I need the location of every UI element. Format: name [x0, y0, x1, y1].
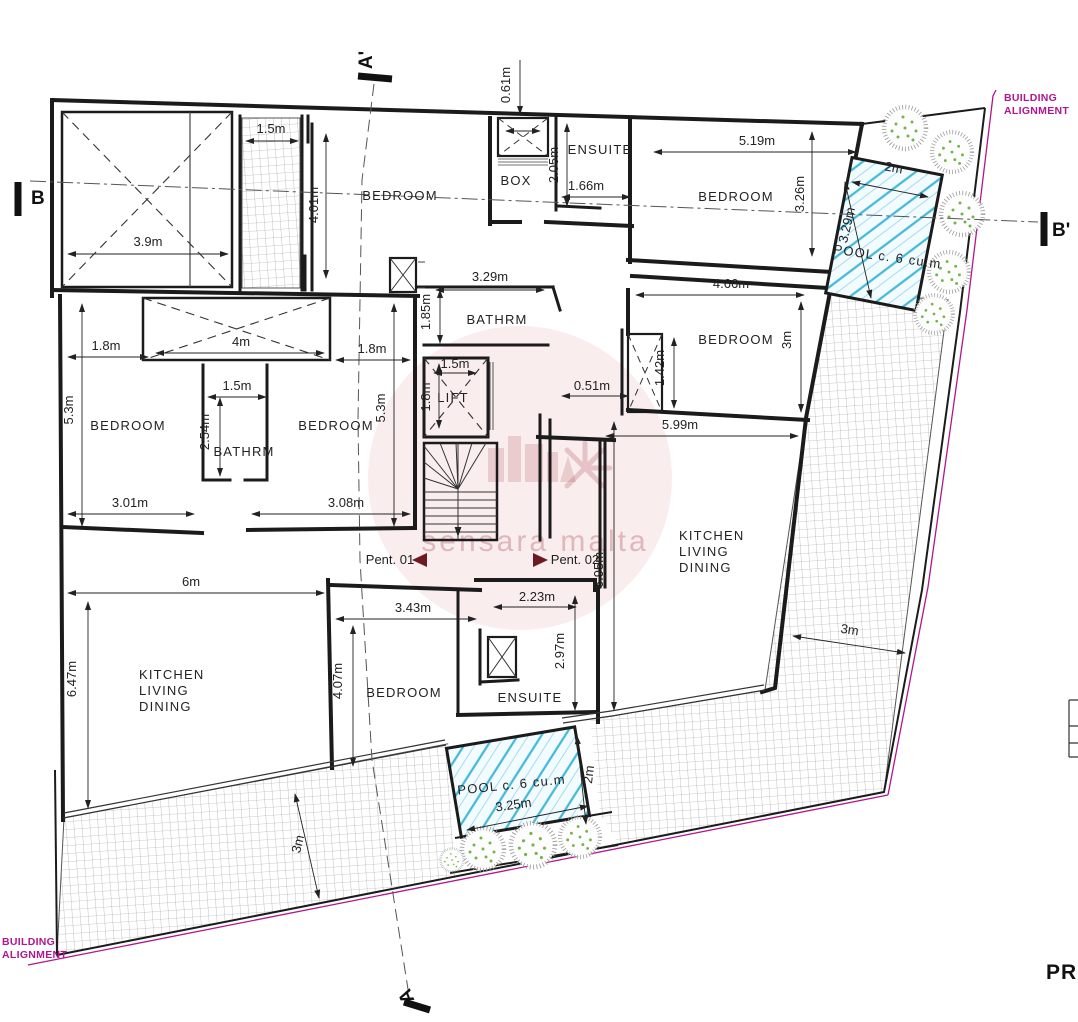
- dim-bottom-ensuite-width: 2.23m: [519, 589, 555, 604]
- room-kitchen-left-3: DINING: [139, 699, 192, 714]
- dim-void4-width: 4m: [232, 334, 250, 349]
- dim-right-bedroom-depth: 3m: [779, 331, 794, 349]
- dim-kitchen-right-width: 5.99m: [662, 417, 698, 432]
- room-left-bedroom: BEDROOM: [90, 418, 166, 433]
- alignment-top-right-2: ALIGNMENT: [1004, 105, 1069, 117]
- dim-center-bath-depth: 1.85m: [418, 294, 433, 330]
- dim-lift-depth: 1.8m: [418, 383, 433, 412]
- dim-kitchen-left-depth: 6.47m: [64, 661, 79, 697]
- dim-kitchen-left-width: 6m: [182, 574, 200, 589]
- dim-left-depth: 5.3m: [61, 396, 76, 425]
- dim-tr-bedroom-depth: 3.26m: [792, 176, 807, 212]
- room-left-bathroom: BATHRM: [213, 444, 274, 459]
- dim-center-bath-width: 3.29m: [472, 269, 508, 284]
- dim-strip-height: 4.01m: [306, 187, 321, 223]
- dim-tr-bedroom-width: 5.19m: [739, 133, 775, 148]
- dim-pool-b-width: 2m: [580, 765, 597, 785]
- room-box: BOX: [500, 173, 531, 188]
- room-bottom-bedroom: BEDROOM: [366, 685, 442, 700]
- dim-left-bath-depth: 2.54m: [197, 414, 212, 450]
- section-a-top-label: A': [356, 51, 377, 69]
- dim-terrace-right: 3m: [840, 621, 860, 639]
- dim-strip-width: 1.5m: [257, 121, 286, 136]
- room-kitchen-right-2: LIVING: [679, 544, 729, 559]
- room-top-left-bedroom: BEDROOM: [362, 188, 438, 203]
- dim-center-depth: 5.3m: [373, 394, 388, 423]
- alignment-bottom-left-2: ALIGNMENT: [2, 949, 67, 961]
- room-kitchen-left-2: LIVING: [139, 683, 189, 698]
- dim-left-bath-width: 1.5m: [223, 378, 252, 393]
- dim-lift-width: 1.5m: [441, 356, 470, 371]
- room-top-right-bedroom: BEDROOM: [698, 189, 774, 204]
- dim-shaft-depth: 1.42m: [652, 350, 667, 386]
- section-b-right-label: B': [1052, 220, 1070, 241]
- room-kitchen-right-1: KITCHEN: [679, 528, 744, 543]
- dim-center-bedroom-width: 3.08m: [328, 495, 364, 510]
- dim-box-offset: 0.61m: [498, 67, 513, 103]
- room-right-bedroom: BEDROOM: [698, 332, 774, 347]
- legend-fragment: [1069, 700, 1078, 757]
- dim-right-bedroom-width: 4.66m: [713, 276, 749, 291]
- dim-ensuite-top-depth: 2.05m: [546, 147, 561, 183]
- dim-ensuite-top-width: 1.66m: [568, 178, 604, 193]
- alignment-top-right-1: BUILDING: [1004, 92, 1057, 104]
- dim-left-bedroom-width: 3.01m: [112, 495, 148, 510]
- room-kitchen-right-3: DINING: [679, 560, 732, 575]
- section-b-left-label: B: [31, 188, 45, 209]
- dim-void-width: 3.9m: [134, 234, 163, 249]
- dim-shaft-offset: 0.51m: [574, 378, 610, 393]
- dim-bottom-ensuite-depth: 2.97m: [552, 633, 567, 669]
- floor-plan: sensara malta: [0, 0, 1078, 1022]
- room-kitchen-left-1: KITCHEN: [139, 667, 204, 682]
- topleft-hatch-strip: [242, 118, 300, 288]
- room-bottom-ensuite: ENSUITE: [498, 690, 563, 705]
- floor-plan-page: sensara malta: [0, 0, 1078, 1022]
- dim-right-offset: 1.8m: [358, 341, 387, 356]
- dim-bottom-bedroom-depth: 4.07m: [330, 663, 345, 699]
- drawing-title-fragment: PR: [1046, 961, 1077, 984]
- dim-bottom-bedroom-width: 3.43m: [395, 600, 431, 615]
- dim-left-offset: 1.8m: [92, 338, 121, 353]
- room-top-ensuite: ENSUITE: [568, 142, 633, 157]
- alignment-bottom-left-1: BUILDING: [2, 936, 55, 948]
- watermark-text: sensara malta: [421, 525, 648, 558]
- room-center-bathroom: BATHRM: [466, 312, 527, 327]
- pent-02-label: Pent. 02: [551, 552, 599, 567]
- room-center-left-bedroom: BEDROOM: [298, 418, 374, 433]
- pent-01-label: Pent. 01: [366, 552, 414, 567]
- room-lift: LIFT: [437, 390, 469, 405]
